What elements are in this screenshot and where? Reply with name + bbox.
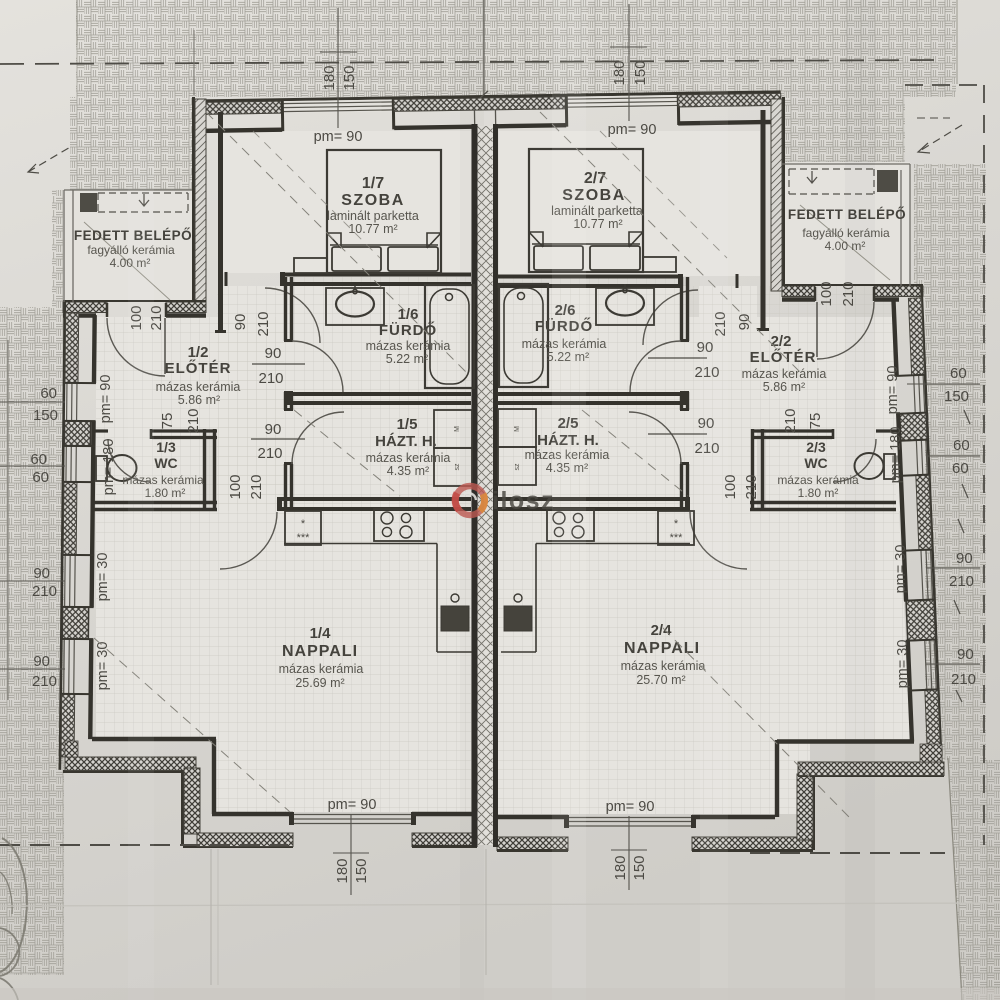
svg-text:90: 90 bbox=[265, 421, 282, 438]
svg-text:210: 210 bbox=[32, 583, 57, 600]
svg-text:pm= 180: pm= 180 bbox=[888, 427, 904, 484]
svg-text:sz: sz bbox=[454, 463, 461, 471]
svg-text:150: 150 bbox=[632, 60, 649, 85]
svg-text:5.86 m²: 5.86 m² bbox=[178, 393, 220, 407]
svg-text:180: 180 bbox=[611, 60, 628, 85]
svg-text:laminált parketta: laminált parketta bbox=[327, 209, 419, 223]
svg-text:210: 210 bbox=[248, 474, 265, 499]
svg-text:ELŐTÉR: ELŐTÉR bbox=[165, 359, 232, 377]
svg-text:1/2: 1/2 bbox=[188, 344, 209, 361]
svg-text:*: * bbox=[301, 518, 306, 530]
svg-text:1/7: 1/7 bbox=[362, 175, 384, 192]
svg-text:2/3: 2/3 bbox=[806, 439, 826, 455]
svg-text:210: 210 bbox=[782, 408, 799, 433]
svg-text:150: 150 bbox=[944, 388, 969, 405]
svg-text:pm= 30: pm= 30 bbox=[95, 553, 111, 602]
svg-text:WC: WC bbox=[154, 455, 177, 471]
svg-text:100: 100 bbox=[818, 281, 835, 306]
svg-text:mázas kerámia: mázas kerámia bbox=[156, 380, 241, 394]
svg-text:75: 75 bbox=[159, 413, 176, 430]
svg-text:210: 210 bbox=[257, 445, 282, 462]
svg-text:2/7: 2/7 bbox=[584, 170, 606, 187]
svg-text:pm= 90: pm= 90 bbox=[608, 122, 657, 138]
svg-text:pm= 30: pm= 30 bbox=[893, 545, 909, 594]
svg-text:210: 210 bbox=[32, 673, 57, 690]
svg-text:5.86 m²: 5.86 m² bbox=[763, 380, 805, 394]
svg-text:sz: sz bbox=[514, 463, 521, 471]
svg-text:*: * bbox=[674, 518, 679, 530]
svg-text:150: 150 bbox=[631, 855, 648, 880]
svg-text:pm= 30: pm= 30 bbox=[95, 642, 111, 691]
svg-text:M: M bbox=[514, 426, 521, 432]
svg-text:mázas kerámia: mázas kerámia bbox=[279, 662, 364, 676]
svg-text:mázas kerámia: mázas kerámia bbox=[742, 367, 827, 381]
svg-text:NAPPALI: NAPPALI bbox=[282, 643, 358, 660]
svg-text:pm= 90: pm= 90 bbox=[314, 129, 363, 145]
svg-text:60: 60 bbox=[32, 469, 49, 486]
svg-text:210: 210 bbox=[255, 311, 272, 336]
svg-text:pm= 90: pm= 90 bbox=[606, 799, 655, 815]
svg-text:1/3: 1/3 bbox=[156, 439, 176, 455]
svg-text:90: 90 bbox=[232, 314, 249, 331]
svg-text:pm= 90: pm= 90 bbox=[328, 797, 377, 813]
svg-text:90: 90 bbox=[33, 653, 50, 670]
svg-text:5.22 m²: 5.22 m² bbox=[386, 352, 428, 366]
svg-text:90: 90 bbox=[956, 550, 973, 567]
svg-text:HÁZT. H.: HÁZT. H. bbox=[375, 433, 437, 450]
svg-text:100: 100 bbox=[227, 474, 244, 499]
svg-text:180: 180 bbox=[321, 65, 338, 90]
svg-text:M: M bbox=[454, 426, 461, 432]
svg-text:mázas kerámia: mázas kerámia bbox=[621, 659, 706, 673]
svg-text:60: 60 bbox=[950, 365, 967, 382]
svg-text:***: *** bbox=[297, 532, 311, 544]
svg-text:60: 60 bbox=[952, 460, 969, 477]
svg-text:1.80 m²: 1.80 m² bbox=[798, 486, 839, 500]
svg-text:***: *** bbox=[670, 532, 684, 544]
svg-text:210: 210 bbox=[258, 370, 283, 387]
svg-text:1/6: 1/6 bbox=[398, 306, 419, 323]
svg-text:SZOBA: SZOBA bbox=[341, 192, 405, 209]
svg-text:25.69 m²: 25.69 m² bbox=[295, 676, 344, 690]
svg-text:1/4: 1/4 bbox=[310, 625, 332, 642]
svg-text:ilosz: ilosz bbox=[492, 487, 555, 515]
svg-text:90: 90 bbox=[265, 345, 282, 362]
svg-text:210: 210 bbox=[951, 671, 976, 688]
svg-text:25.70 m²: 25.70 m² bbox=[636, 673, 685, 687]
svg-text:pm= 30: pm= 30 bbox=[895, 640, 911, 689]
svg-text:210: 210 bbox=[743, 474, 760, 499]
svg-text:150: 150 bbox=[353, 858, 370, 883]
svg-text:2/2: 2/2 bbox=[771, 333, 792, 350]
svg-text:pm= 90: pm= 90 bbox=[98, 375, 114, 424]
svg-text:1/5: 1/5 bbox=[397, 416, 418, 433]
svg-text:180: 180 bbox=[334, 858, 351, 883]
svg-text:4.35 m²: 4.35 m² bbox=[387, 464, 429, 478]
svg-text:75: 75 bbox=[807, 413, 824, 430]
svg-text:WC: WC bbox=[804, 455, 827, 471]
svg-text:mázas kerámia: mázas kerámia bbox=[366, 339, 451, 353]
svg-text:mázas kerámia: mázas kerámia bbox=[366, 451, 451, 465]
svg-text:2/4: 2/4 bbox=[651, 622, 673, 639]
svg-text:FÜRDŐ: FÜRDŐ bbox=[379, 321, 437, 339]
svg-text:60: 60 bbox=[40, 385, 57, 402]
svg-text:ELŐTÉR: ELŐTÉR bbox=[750, 348, 817, 366]
svg-text:pm= 180: pm= 180 bbox=[101, 439, 117, 496]
svg-text:90: 90 bbox=[957, 646, 974, 663]
svg-text:90: 90 bbox=[33, 565, 50, 582]
svg-text:180: 180 bbox=[612, 855, 629, 880]
svg-text:pm= 90: pm= 90 bbox=[885, 366, 901, 415]
svg-text:210: 210 bbox=[949, 573, 974, 590]
svg-text:60: 60 bbox=[953, 437, 970, 454]
svg-text:210: 210 bbox=[185, 408, 202, 433]
svg-text:150: 150 bbox=[341, 65, 358, 90]
svg-text:150: 150 bbox=[33, 407, 58, 424]
